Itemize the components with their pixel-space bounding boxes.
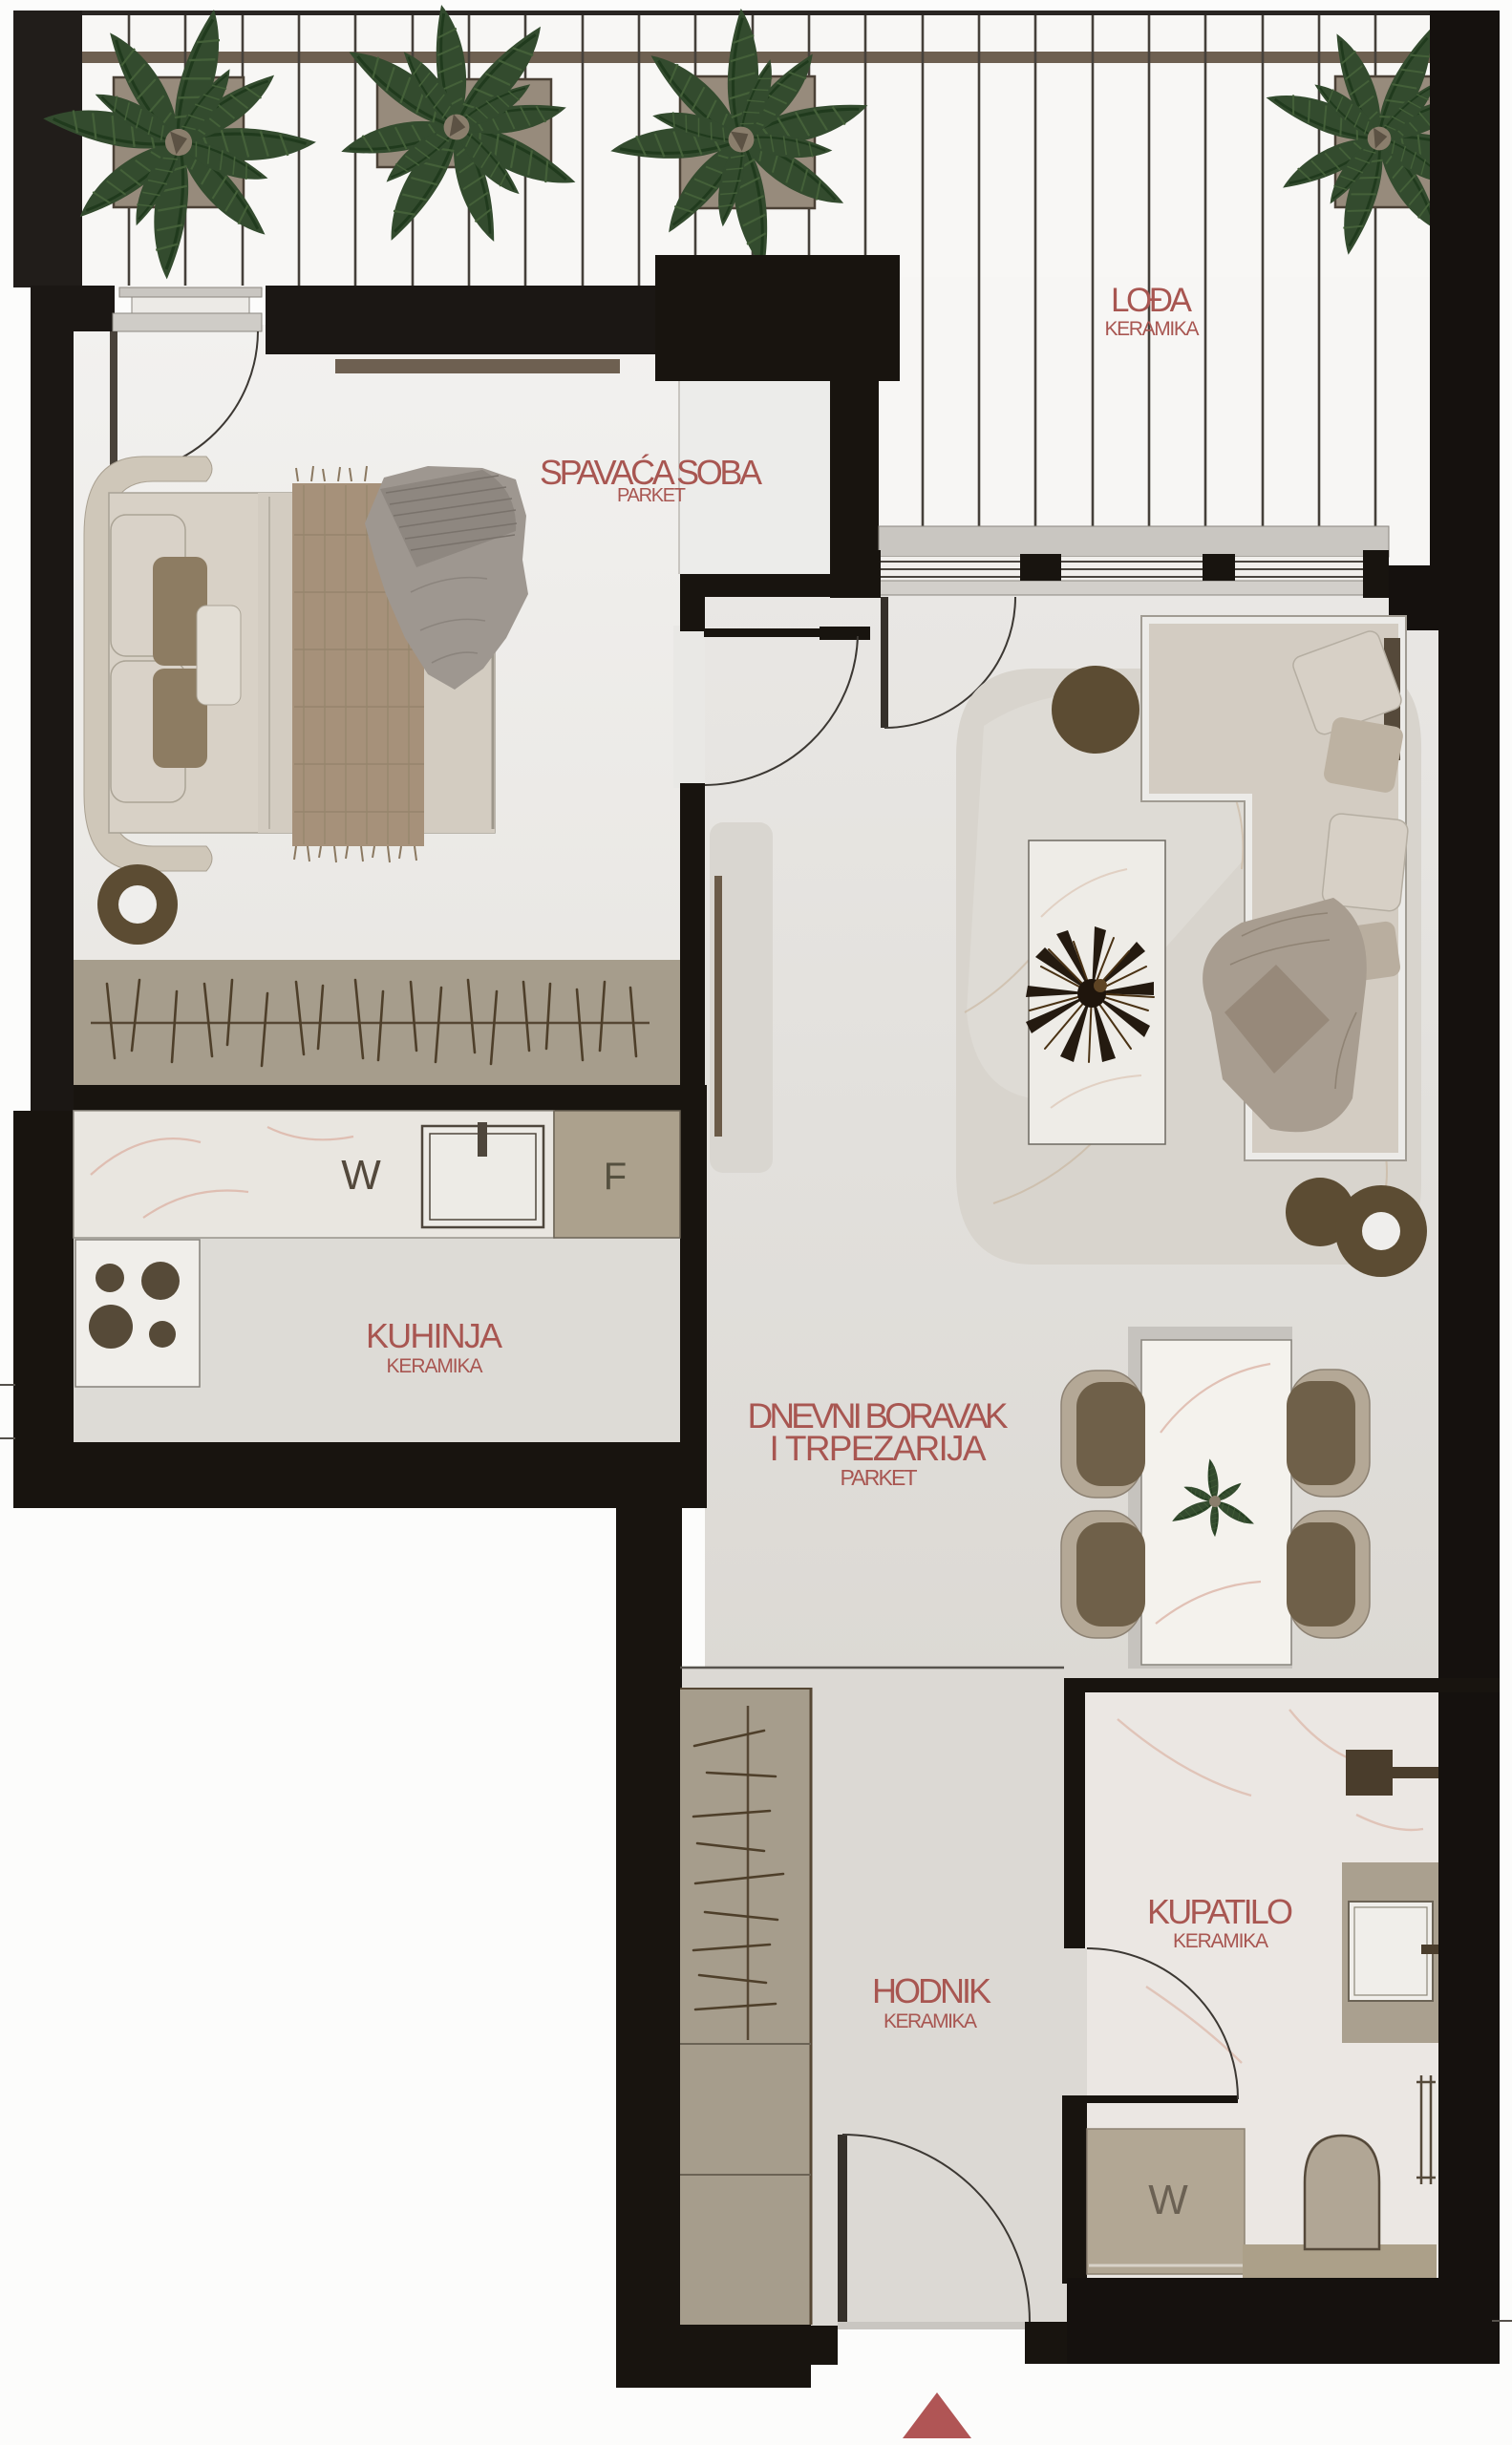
svg-text:KERAMIKA: KERAMIKA (1173, 1930, 1270, 1952)
svg-text:PARKET: PARKET (617, 485, 688, 506)
svg-text:KERAMIKA: KERAMIKA (387, 1355, 485, 1377)
svg-text:LOĐA: LOĐA (1111, 282, 1195, 319)
svg-text:HODNIK: HODNIK (872, 1971, 994, 2010)
svg-text:I TRPEZARIJA: I TRPEZARIJA (770, 1429, 989, 1468)
svg-text:KUPATILO: KUPATILO (1147, 1892, 1296, 1931)
svg-text:KUHINJA: KUHINJA (366, 1316, 505, 1355)
svg-text:F: F (604, 1156, 627, 1198)
svg-text:W: W (341, 1152, 381, 1199)
svg-text:KERAMIKA: KERAMIKA (1105, 318, 1202, 340)
svg-text:KERAMIKA: KERAMIKA (884, 2010, 979, 2032)
svg-text:PARKET: PARKET (841, 1465, 920, 1490)
svg-text:W: W (1148, 2177, 1188, 2223)
